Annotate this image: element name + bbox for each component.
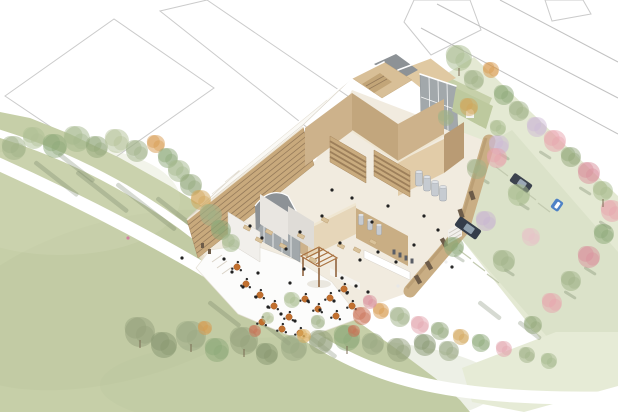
person-figure (396, 284, 399, 287)
person-figure (241, 285, 244, 288)
person-figure (266, 305, 269, 308)
person-figure (248, 224, 251, 227)
tree (390, 307, 410, 327)
tree (472, 334, 490, 352)
person-figure (394, 260, 397, 263)
tree (524, 316, 542, 334)
axonometric-cutaway-drawing (0, 0, 618, 412)
person-figure (222, 257, 225, 260)
person-figure (260, 236, 263, 239)
person-figure (298, 230, 301, 233)
person-figure (284, 247, 287, 250)
person-figure (256, 271, 259, 274)
person-figure (376, 250, 379, 253)
context-building-outline (404, 0, 481, 55)
person-figure (254, 295, 257, 298)
person-figure (293, 319, 296, 322)
person-figure (345, 291, 348, 294)
context-building-outline (545, 0, 591, 21)
person-figure (366, 290, 369, 293)
person-figure (302, 267, 305, 270)
person-figure (320, 214, 323, 217)
person-figure (354, 284, 357, 287)
tree (453, 329, 469, 345)
person-figure (422, 214, 425, 217)
person-figure (412, 243, 415, 246)
person-figure (444, 260, 447, 263)
person-figure (230, 270, 233, 273)
tree (446, 45, 472, 71)
person-figure (338, 241, 341, 244)
person-figure (318, 308, 321, 311)
person-figure (340, 276, 343, 279)
person-figure (370, 220, 373, 223)
person-figure (306, 299, 309, 302)
person-figure (358, 258, 361, 261)
person-figure (350, 196, 353, 199)
tree (431, 322, 449, 340)
tree (411, 316, 429, 334)
person-figure (330, 188, 333, 191)
person-figure (386, 204, 389, 207)
person-figure (126, 236, 129, 239)
person-figure (450, 265, 453, 268)
person-figure (288, 281, 291, 284)
architectural-site-illustration (0, 0, 618, 412)
person-figure (436, 228, 439, 231)
person-figure (180, 256, 183, 259)
person-figure (279, 312, 282, 315)
person-figure (332, 299, 335, 302)
